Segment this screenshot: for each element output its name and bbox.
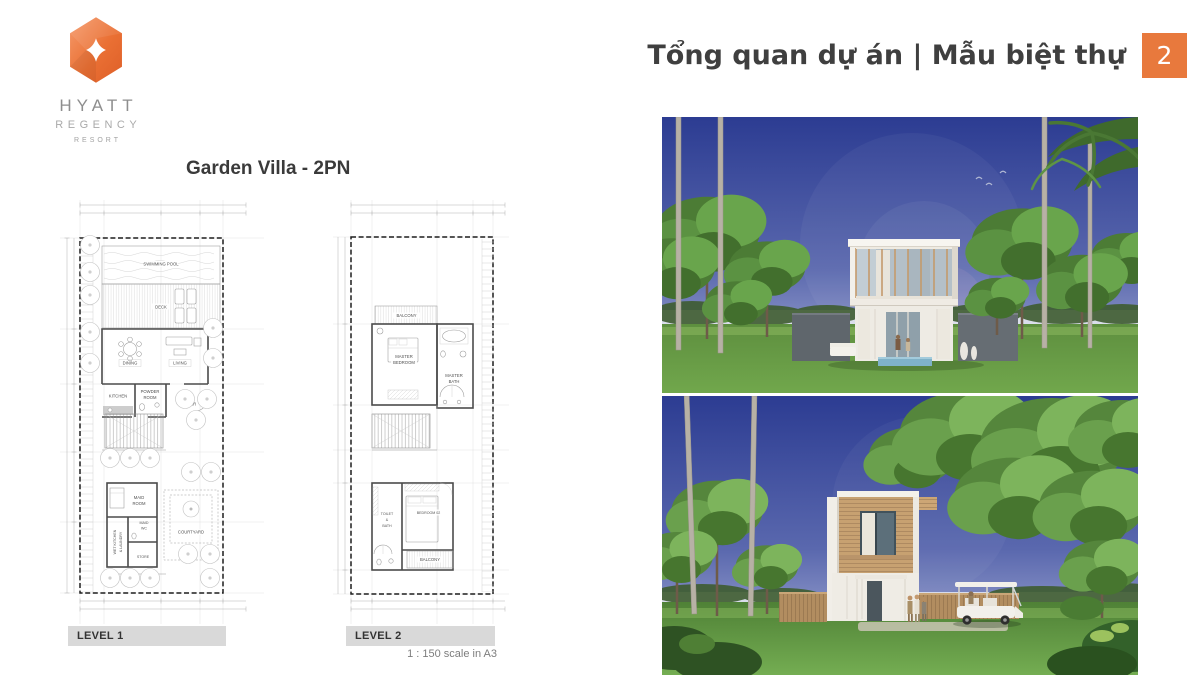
- room-label-kitchen: KITCHEN: [109, 394, 127, 399]
- room-label-living: LIVING: [173, 361, 187, 366]
- room-label-balcony-top: BALCONY: [396, 313, 416, 318]
- room-label-swimming-pool: SWIMMING POOL: [143, 262, 179, 267]
- level1-bar: LEVEL 1: [68, 626, 226, 646]
- room-label-courtyard: COURTYARD: [178, 530, 204, 535]
- page-number-badge: 2: [1142, 33, 1187, 78]
- room-label-store: STORE: [137, 555, 150, 559]
- room-living-dining: DINING LIVING: [102, 329, 208, 384]
- villa-rendering-entrance: [662, 396, 1138, 675]
- brand-division: REGENCY: [36, 119, 156, 131]
- room-master-bedroom: MASTER BEDROOM: [372, 324, 437, 405]
- room-maid-block: MAID ROOM WET KITCHEN & LAUNDRY MAID WC …: [107, 483, 157, 567]
- room-label-toilet-2: &: [386, 518, 389, 522]
- scale-note: 1 : 150 scale in A3: [333, 648, 497, 660]
- floorplan-level1: SWIMMING POOL DECK DINING LIVING: [58, 192, 268, 662]
- room-label-toilet-3: BATH: [382, 524, 392, 528]
- villa-rendering-front: [662, 117, 1138, 393]
- room-label-master-2: BEDROOM: [393, 360, 415, 365]
- brand-descriptor: RESORT: [36, 137, 156, 144]
- room-label-maidwc-2: WC: [141, 527, 147, 531]
- stairs-l1: [102, 414, 166, 450]
- slide: HYATT REGENCY RESORT Tổng quan dự án | M…: [0, 0, 1200, 675]
- room-label-powder-2: ROOM: [143, 395, 157, 400]
- hyatt-diamond-icon: [64, 16, 128, 84]
- room-label-wet-kitchen-2: & LAUNDRY: [119, 531, 123, 552]
- hyatt-logo: HYATT REGENCY RESORT: [36, 16, 156, 144]
- room-label-toilet-1: TOILET: [381, 512, 394, 516]
- room-label-maid-2: ROOM: [132, 501, 146, 506]
- room-label-masterbath-2: BATH: [449, 379, 460, 384]
- brand-name: HYATT: [36, 96, 156, 116]
- room-label-masterbath-1: MASTER: [445, 373, 462, 378]
- room-balcony-top: BALCONY: [375, 306, 437, 324]
- room-label-maid-1: MAID: [134, 495, 144, 500]
- level2-bar: LEVEL 2: [346, 626, 495, 646]
- room-label-deck: DECK: [155, 305, 167, 310]
- stairs-l2: [372, 405, 437, 450]
- room-label-master-1: MASTER: [395, 354, 412, 359]
- room-lower-block: TOILET & BATH BEDROOM 02 BALCONY: [372, 483, 453, 570]
- room-label-maidwc-1: MAID: [140, 521, 149, 525]
- room-label-powder-1: POWDER: [141, 389, 160, 394]
- room-label-dining: DINING: [123, 361, 138, 366]
- room-master-bath: MASTER BATH: [437, 324, 473, 408]
- floorplan-level2: BALCONY MASTER BEDROOM MASTER: [333, 192, 513, 662]
- slide-title: Tổng quan dự án | Mẫu biệt thự: [647, 40, 1126, 71]
- room-label-balcony-bottom: BALCONY: [420, 557, 440, 562]
- right-fence-hatch-l2: [482, 239, 494, 592]
- room-label-wet-kitchen-1: WET KITCHEN: [113, 529, 117, 554]
- room-label-bedroom2: BEDROOM 02: [417, 511, 441, 515]
- header: Tổng quan dự án | Mẫu biệt thự 2: [647, 33, 1187, 78]
- plan-title: Garden Villa - 2PN: [186, 158, 350, 180]
- room-deck: DECK: [102, 284, 220, 328]
